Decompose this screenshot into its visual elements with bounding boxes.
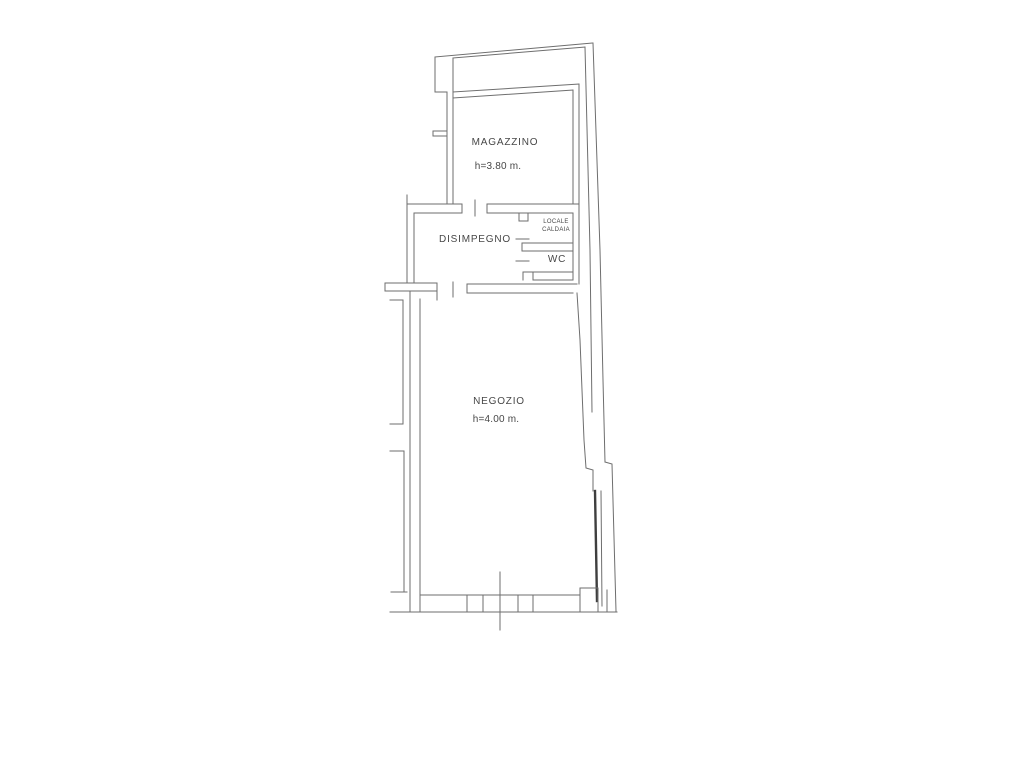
storefront-right-step: [580, 588, 598, 595]
outer-top-wall-outer-line: [435, 43, 592, 57]
room-label-locale-caldaia-line1: LOCALE: [543, 219, 568, 225]
entry-door-leaf: [595, 491, 597, 601]
entry-door-outer-line: [601, 491, 602, 606]
room-label-wc: WC: [548, 255, 566, 265]
room-label-locale-caldaia-line2: CALDAIA: [542, 227, 570, 233]
room-label-magazzino: MAGAZZINO: [472, 138, 539, 148]
boundary-right-outer-line: [593, 43, 605, 462]
caldaia-door-jamb: [519, 213, 528, 221]
floor-plan: MAGAZZINO h=3.80 m. DISIMPEGNO LOCALE CA…: [0, 0, 1024, 768]
room-height-negozio: h=4.00 m.: [473, 415, 520, 425]
room-label-negozio: NEGOZIO: [473, 397, 525, 407]
room-label-disimpegno: DISIMPEGNO: [439, 235, 511, 245]
wc-door-jamb: [523, 272, 533, 280]
boundary-right-inner-line: [585, 47, 592, 412]
room-height-magazzino: h=3.80 m.: [475, 162, 522, 172]
boundary-right-outer-lower: [605, 462, 616, 611]
plan-lines-svg: [0, 0, 1024, 768]
outer-top-wall-inner-line: [453, 47, 585, 58]
